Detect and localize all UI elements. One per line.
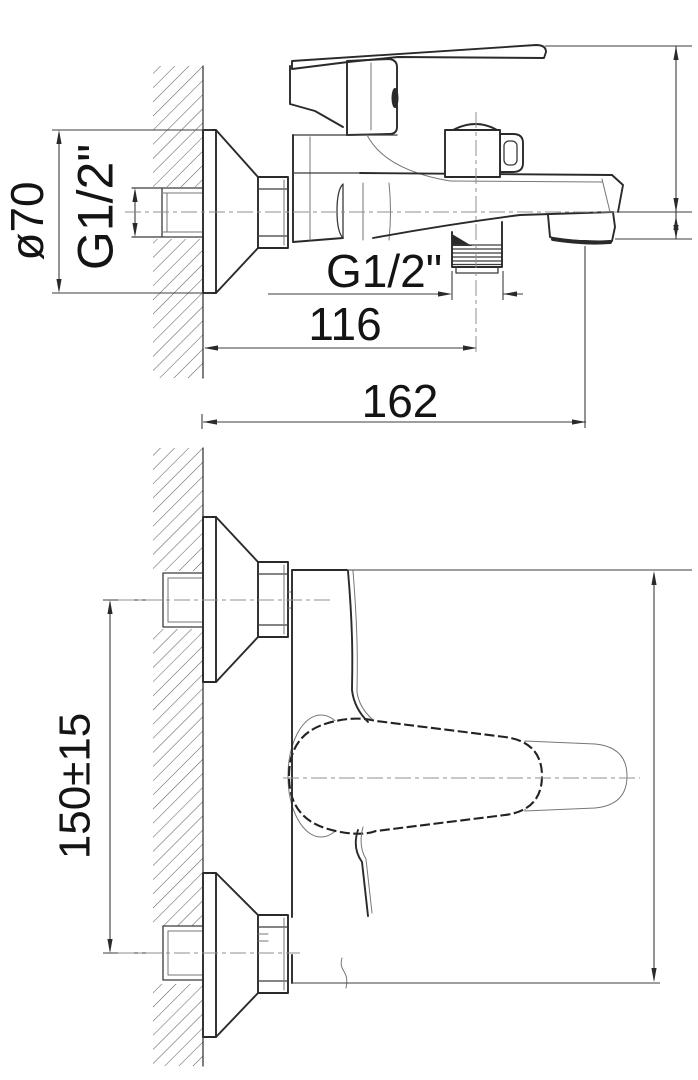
label-wall-inlet-thread: G1/2" [68,144,124,270]
dimension-150 [103,600,160,953]
label-flange-diameter: ø70 [1,181,53,260]
label-116: 116 [308,298,381,350]
diverter-knob [445,124,523,177]
handle-screw [392,88,399,108]
label-outlet-thread: G1/2" [326,245,442,297]
faucet-body-plan [288,570,627,988]
shower-outlet-thread [452,222,502,273]
label-150-15: 150±15 [50,713,99,860]
label-162: 162 [362,375,439,427]
plan-view: 150±15 [50,448,692,1066]
faucet-dimension-drawing: ø70 G1/2" G1/2" 116 162 [0,0,698,1080]
wall-section-side [153,66,203,378]
lever-handle-plan [289,719,542,834]
wall-section-plan [153,448,203,1066]
side-view: ø70 G1/2" G1/2" 116 162 [1,45,692,429]
drawing-canvas: ø70 G1/2" G1/2" 116 162 [0,0,698,1080]
lever-handle-side [292,45,546,69]
spout-side [360,173,623,243]
spout-aerator-cap [548,212,615,242]
